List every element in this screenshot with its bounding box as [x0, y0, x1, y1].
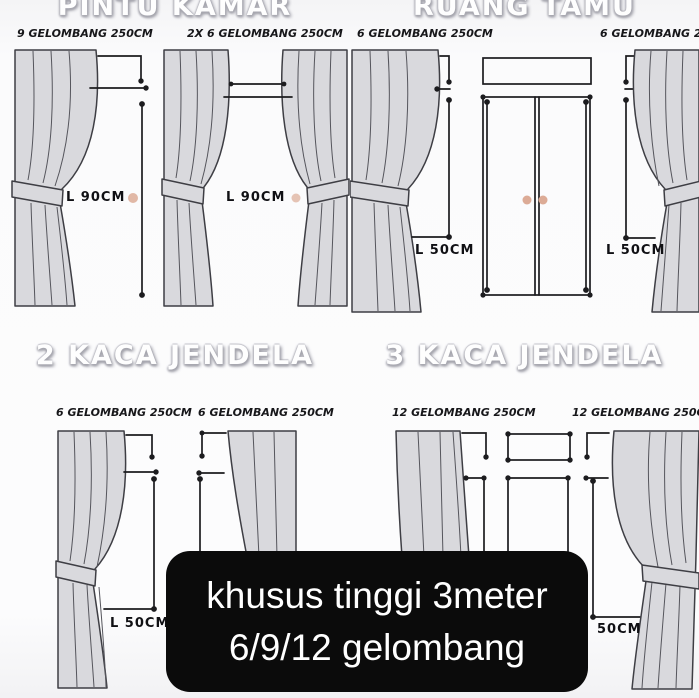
caption-line-1: khusus tinggi 3meter [206, 570, 547, 621]
rod-bracket [90, 56, 149, 91]
length-label: L 50CM [606, 243, 665, 258]
curtain-illustration [350, 50, 440, 312]
wave-count-label: 12 GELOMBANG 250CM [392, 406, 536, 419]
wave-count-label: 6 GELOMBANG 250CM [56, 406, 192, 419]
length-label: L 90CM [226, 190, 285, 205]
pintu-kamar-diagrams [0, 0, 350, 335]
length-label: L 50CM [110, 616, 169, 631]
rod-bracket [583, 433, 609, 481]
curtain-size-infographic: PINTU KAMAR RUANG TAMU 2 KACA JENDELA 3 … [0, 0, 699, 698]
rod-bracket [196, 431, 226, 476]
length-label: L 50CM [415, 243, 474, 258]
section-title-ruang-tamu: RUANG TAMU [350, 0, 699, 22]
height-measure-line [197, 476, 203, 557]
length-label: 50CM [597, 622, 642, 637]
window-frame [505, 431, 572, 557]
section-title-3-kaca-jendela: 3 KACA JENDELA [350, 340, 699, 371]
wave-count-label: 6 GELOMBANG 250CM [600, 27, 699, 40]
wave-count-label: 6 GELOMBANG 250CM [357, 27, 493, 40]
ruang-tamu-diagrams [350, 0, 699, 335]
door-illustration [480, 58, 592, 298]
length-label: L 90CM [66, 190, 125, 205]
curtain-illustration [633, 50, 699, 312]
section-title-2-kaca-jendela: 2 KACA JENDELA [0, 340, 350, 371]
rod-bracket [124, 435, 159, 475]
curtain-illustration [612, 431, 699, 689]
curtain-illustration [12, 50, 98, 306]
curtain-illustration [396, 431, 469, 557]
door-knob-dot [523, 196, 532, 205]
wave-count-label: 12 GELOMBANG 250CM [572, 406, 699, 419]
caption-line-2: 6/9/12 gelombang [229, 622, 525, 673]
marker-dot [128, 193, 138, 203]
door-knob-dot [539, 196, 548, 205]
marker-dot [292, 194, 301, 203]
curtain-illustration [228, 431, 296, 557]
curtain-pair-illustration [162, 50, 349, 306]
height-measure-line [139, 101, 145, 298]
wave-count-label: 6 GELOMBANG 250CM [198, 406, 334, 419]
caption-banner: khusus tinggi 3meter 6/9/12 gelombang [166, 551, 588, 692]
wave-count-label: 2X 6 GELOMBANG 250CM [187, 27, 343, 40]
curtain-illustration [56, 431, 126, 688]
section-title-pintu-kamar: PINTU KAMAR [0, 0, 350, 22]
wave-count-label: 9 GELOMBANG 250CM [17, 27, 153, 40]
